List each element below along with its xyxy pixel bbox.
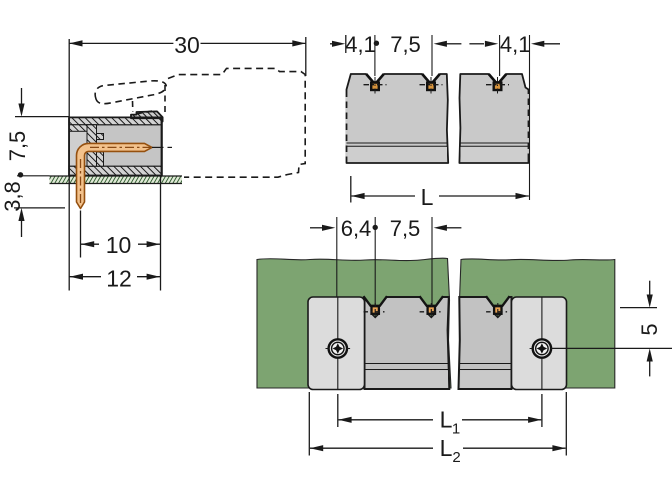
svg-text:4,1: 4,1 [345,32,376,57]
svg-text:3,8: 3,8 [0,181,25,212]
svg-text:30: 30 [174,32,200,58]
svg-text:7,5: 7,5 [390,216,421,241]
svg-text:L: L [440,407,453,433]
svg-text:4,1: 4,1 [500,32,531,57]
svg-text:1: 1 [452,421,460,438]
svg-text:7,5: 7,5 [390,32,421,57]
svg-text:12: 12 [106,266,132,292]
svg-text:6,4: 6,4 [341,216,372,241]
svg-text:5: 5 [637,323,662,335]
svg-text:2: 2 [452,449,460,466]
svg-text:7,5: 7,5 [5,131,30,162]
svg-text:10: 10 [106,232,132,258]
svg-text:L: L [421,184,434,210]
svg-text:L: L [440,435,453,461]
